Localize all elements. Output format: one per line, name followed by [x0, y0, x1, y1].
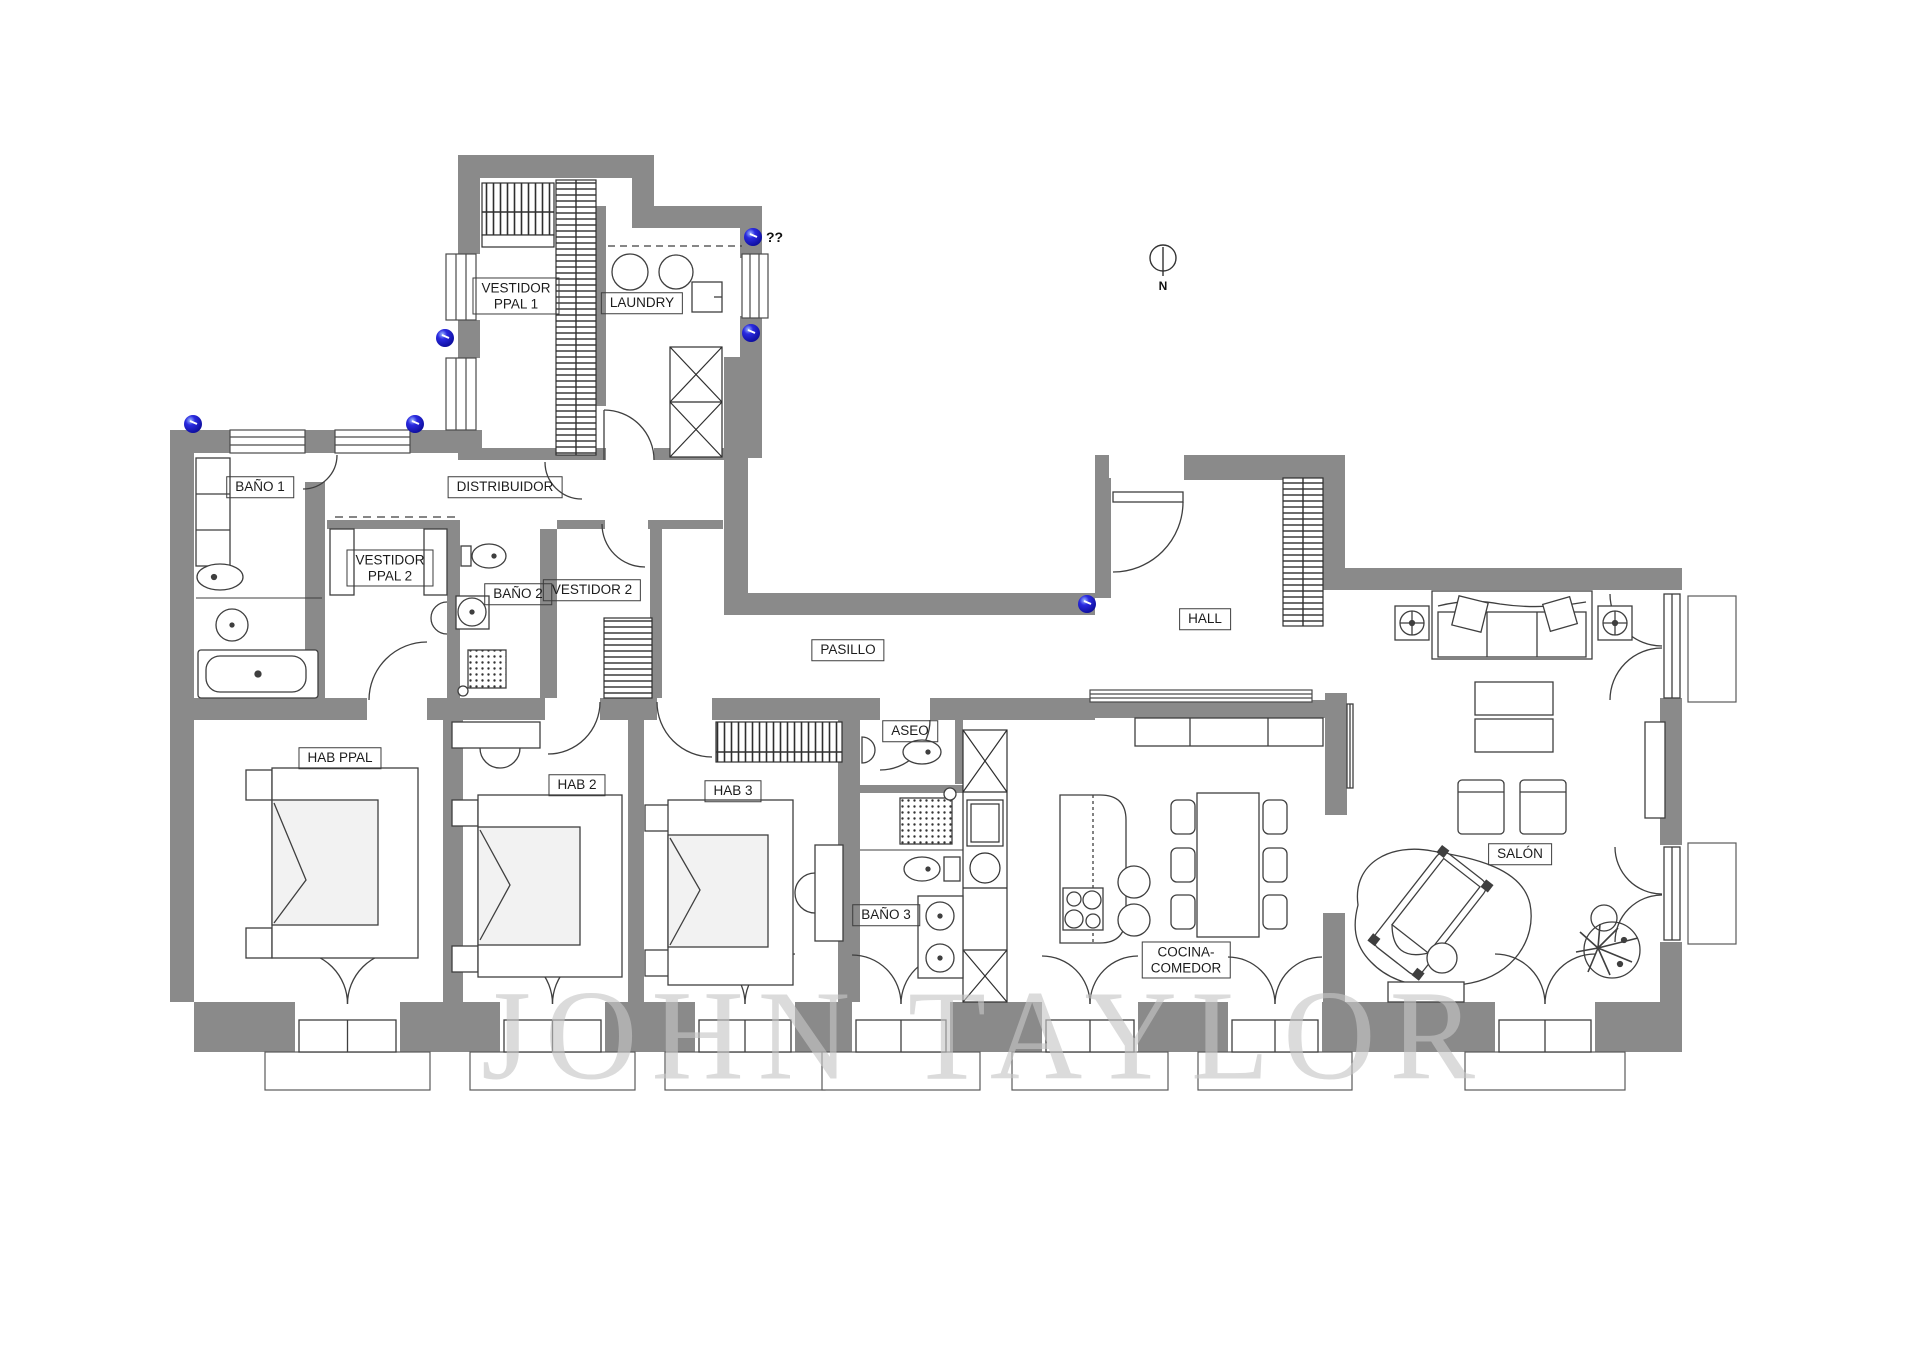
room-label-vestidor-ppal-1: VESTIDOR PPAL 1	[472, 277, 559, 314]
floorplan-canvas: JOHN TAYLOR VESTIDOR PPAL 1 LAUNDRY BAÑO…	[0, 0, 1920, 1357]
room-label-hall: HALL	[1179, 608, 1231, 630]
room-label-bano-2: BAÑO 2	[484, 583, 552, 605]
room-label-cocina-comedor: COCINA- COMEDOR	[1142, 941, 1231, 978]
room-label-hab-ppal: HAB PPAL	[298, 747, 381, 769]
room-label-hab-3: HAB 3	[704, 780, 761, 802]
room-label-vestidor-ppal-2: VESTIDOR PPAL 2	[346, 549, 433, 586]
unknown-annotation: ??	[766, 229, 783, 245]
room-label-hab-2: HAB 2	[548, 774, 605, 796]
north-label: N	[1159, 279, 1168, 293]
room-label-pasillo: PASILLO	[811, 639, 884, 661]
room-label-aseo: ASEO	[882, 720, 938, 742]
room-label-vestidor-2: VESTIDOR 2	[543, 579, 641, 601]
room-label-bano-1: BAÑO 1	[226, 476, 294, 498]
windows	[230, 254, 1312, 702]
floorplan-drawing	[0, 0, 1920, 1357]
room-label-distribuidor: DISTRIBUIDOR	[448, 476, 563, 498]
room-label-salon: SALÓN	[1488, 843, 1552, 865]
room-label-laundry: LAUNDRY	[601, 292, 683, 314]
furniture	[196, 246, 1665, 1002]
north-arrow-icon	[1150, 245, 1176, 276]
room-label-bano-3: BAÑO 3	[852, 904, 920, 926]
